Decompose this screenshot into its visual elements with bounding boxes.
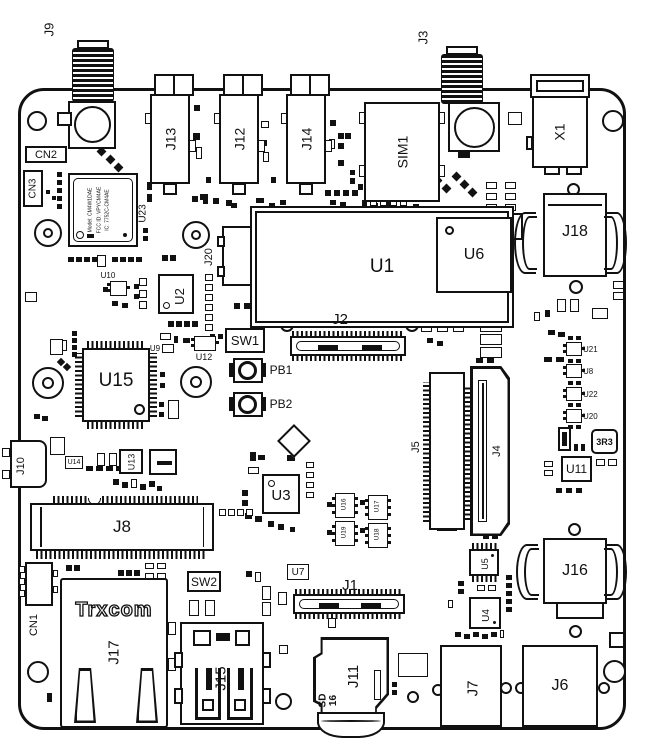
passive-pad — [228, 509, 235, 516]
passive-pad — [219, 509, 226, 516]
passive-pad — [488, 585, 496, 591]
passive-pad — [200, 194, 208, 200]
chip-u11: U11 — [561, 456, 592, 482]
passive-pad — [113, 479, 119, 485]
connector-j7: J7 — [440, 645, 502, 727]
usb-prong-right — [227, 668, 253, 720]
passive-pad — [50, 437, 65, 455]
sma-j9-base — [68, 101, 116, 149]
passive-pad — [205, 304, 213, 311]
chip-u7: U7 — [287, 564, 309, 580]
chip-u2: U2 — [158, 274, 194, 314]
passive-pad — [486, 193, 497, 200]
passive-pad — [218, 334, 223, 339]
mount-hole — [598, 682, 610, 694]
passive-pad — [350, 170, 355, 175]
passive-pad — [458, 581, 464, 586]
ethernet-brand-text: Trxcom — [62, 598, 166, 622]
passive-pad — [258, 140, 265, 152]
chip-u15-label: U15 — [84, 352, 148, 410]
diagonal-pad — [63, 363, 71, 371]
passive-pad — [506, 591, 512, 596]
passive-pad — [246, 509, 253, 516]
passive-pad — [576, 425, 581, 429]
passive-pad — [576, 403, 581, 407]
wireless-module-u23: Model: CM4W1DAE FCC ID: VPYCM4AE IC: 775… — [68, 173, 138, 247]
chip-u12-label: U12 — [190, 352, 218, 362]
passive-pad — [159, 402, 164, 407]
chip-u13: U13 — [119, 449, 143, 474]
connector-cn3: CN3 — [23, 170, 43, 207]
micro-usb-j10: J10 — [10, 440, 47, 488]
connector-cn2: CN2 — [25, 146, 67, 163]
passive-pad — [143, 236, 148, 241]
passive-pad — [76, 257, 82, 262]
passive-pad — [268, 521, 274, 527]
passive-pad — [196, 147, 202, 159]
passive-pad — [352, 190, 358, 196]
antenna-j3-label: J3 — [414, 22, 432, 52]
passive-pad — [57, 180, 62, 185]
chip-u20 — [566, 409, 582, 423]
chip-u6: U6 — [436, 217, 512, 293]
passive-pad — [106, 466, 113, 471]
passive-pad — [262, 602, 271, 616]
passive-pad — [557, 299, 566, 312]
chip-u12 — [194, 336, 216, 351]
micro-usb-j10-label: J10 — [14, 448, 28, 484]
passive-pad — [477, 585, 485, 591]
passive-pad — [205, 284, 213, 291]
passive-pad — [176, 321, 182, 327]
passive-pad — [448, 600, 453, 608]
passive-pad — [66, 565, 72, 571]
diagonal-pad — [441, 183, 451, 193]
ethernet-jack-j17: Trxcom J17 — [60, 578, 168, 728]
passive-pad — [556, 488, 562, 493]
passive-pad — [57, 196, 62, 201]
chip-u19: U19 — [335, 521, 355, 546]
passive-pad — [576, 359, 581, 363]
passive-pad — [193, 133, 200, 140]
passive-pad — [128, 257, 134, 262]
passive-pad — [608, 459, 617, 466]
passive-pad — [325, 140, 332, 152]
passive-pad — [53, 570, 58, 577]
passive-pad — [170, 255, 176, 261]
passive-pad — [392, 690, 397, 695]
mount-hole-ring-inner — [190, 376, 202, 388]
connector-j7-label: J7 — [464, 667, 482, 709]
header-j20-label: J20 — [202, 240, 216, 274]
passive-pad — [46, 190, 50, 194]
switch-sw2: SW2 — [187, 571, 221, 592]
passive-pad — [506, 607, 512, 612]
passive-pad — [258, 455, 265, 460]
passive-pad — [86, 466, 93, 471]
passive-pad — [162, 255, 168, 261]
passive-pad — [398, 653, 428, 677]
header-cn1 — [25, 562, 53, 606]
chip-u3-label: U3 — [264, 478, 298, 512]
header-cn1-label: CN1 — [27, 608, 41, 642]
passive-pad — [194, 105, 200, 111]
chip-u21-label: U21 — [583, 344, 607, 354]
passive-pad — [97, 255, 106, 267]
passive-pad — [84, 257, 90, 262]
passive-pad — [544, 461, 553, 467]
passive-pad — [205, 274, 213, 281]
passive-pad — [327, 502, 332, 507]
passive-pad — [68, 257, 74, 262]
passive-pad — [255, 572, 261, 582]
ethernet-jack-j17-label: J17 — [102, 632, 126, 672]
passive-pad — [246, 571, 252, 577]
microsd-slot-j11-label: J11 — [345, 655, 363, 697]
diagonal-pad — [467, 187, 477, 197]
passive-pad — [500, 630, 504, 638]
passive-pad — [480, 347, 502, 358]
passive-pad — [544, 357, 552, 362]
passive-pad — [455, 632, 461, 637]
inductor-3r3: 3R3 — [591, 429, 618, 454]
passive-pad — [192, 321, 198, 327]
passive-pad — [345, 133, 351, 139]
passive-pad — [334, 190, 340, 196]
passive-pad — [613, 281, 624, 289]
passive-pad — [350, 178, 355, 184]
passive-pad — [250, 452, 256, 461]
passive-pad — [338, 133, 344, 139]
passive-pad — [74, 565, 80, 571]
pcb-assembly-diagram: J9 CN2 CN3 Model: CM4W1DAE FCC ID: VPYCM… — [0, 0, 650, 741]
mount-hole — [275, 693, 292, 710]
chip-u6-label: U6 — [438, 219, 510, 291]
passive-pad — [437, 341, 443, 346]
passive-pad — [226, 200, 232, 206]
mount-hole — [27, 111, 47, 131]
chip-u8-label: U8 — [583, 366, 607, 376]
antenna-j9-label: J9 — [40, 14, 58, 44]
chip-u18: U18 — [368, 523, 388, 548]
sma-j9-barrel — [74, 106, 111, 143]
passive-pad — [122, 303, 128, 308]
passive-pad — [109, 453, 117, 466]
passive-pad — [392, 682, 397, 687]
mount-hole-ring-inner — [43, 228, 53, 238]
passive-pad — [184, 321, 190, 327]
passive-pad — [338, 143, 344, 149]
passive-pad — [558, 332, 565, 337]
passive-pad — [576, 488, 582, 493]
chip-with-dash-mark — [149, 449, 177, 475]
passive-pad — [464, 634, 470, 639]
passive-pad — [52, 196, 56, 200]
diagonal-pad — [451, 171, 461, 181]
mount-hole — [27, 661, 49, 683]
chip-u16: U16 — [335, 493, 355, 518]
passive-pad — [568, 403, 573, 407]
passive-pad — [458, 589, 464, 594]
usb-a-port-j15: J15 — [180, 622, 264, 725]
passive-pad — [534, 312, 540, 321]
passive-pad — [330, 120, 336, 126]
passive-pad — [53, 586, 58, 593]
chip-u21 — [566, 342, 582, 356]
capacitor-component — [558, 427, 571, 451]
passive-pad — [306, 482, 314, 488]
passive-pad — [168, 321, 174, 327]
chip-u22 — [566, 387, 582, 401]
chip-u14: U14 — [65, 456, 83, 469]
power-jack-x1-label: X1 — [546, 108, 574, 156]
passive-pad — [157, 563, 166, 569]
chip-u22-label: U22 — [583, 389, 607, 399]
module-text-line3: IC: 7752C-CM4AE — [104, 177, 112, 243]
passive-pad — [574, 444, 578, 451]
module-pin1-ring — [76, 231, 84, 239]
passive-pad — [548, 330, 555, 335]
passive-pad — [487, 358, 494, 363]
passive-pad — [325, 190, 331, 196]
passive-pad — [255, 516, 262, 522]
passive-pad — [126, 570, 132, 576]
passive-pad — [160, 383, 165, 388]
diagonal-pad — [105, 154, 115, 164]
module-text-line2: FCC ID: VPYCM4AE — [95, 177, 103, 243]
passive-pad — [613, 292, 624, 300]
passive-pad — [505, 182, 516, 189]
diagonal-pad — [459, 179, 469, 189]
passive-pad — [131, 479, 137, 488]
push-button-pb2-label: PB2 — [265, 397, 297, 411]
passive-pad — [160, 333, 171, 340]
passive-pad — [57, 204, 62, 209]
sma-j3-barrel — [454, 107, 495, 148]
passive-pad — [568, 381, 573, 385]
passive-pad — [134, 570, 140, 576]
header-j20 — [222, 226, 252, 286]
passive-pad — [189, 600, 199, 616]
passive-pad — [97, 453, 105, 466]
passive-pad — [556, 357, 564, 362]
passive-pad — [544, 470, 553, 476]
passive-pad — [280, 200, 286, 205]
passive-pad — [206, 177, 211, 183]
passive-pad — [343, 190, 349, 196]
passive-pad — [581, 444, 585, 451]
passive-pad — [278, 592, 287, 605]
passive-pad — [149, 481, 155, 487]
mpcie-connector-j8-label: J8 — [30, 505, 214, 549]
passive-pad — [237, 509, 244, 516]
passive-pad — [576, 381, 581, 385]
passive-pad — [34, 414, 40, 419]
chip-u4: U4 — [469, 597, 501, 629]
sd-card-text-2: 16 — [328, 688, 339, 712]
passive-pad — [72, 345, 77, 350]
passive-pad — [508, 112, 522, 125]
mount-hole — [603, 660, 626, 683]
mount-hole — [602, 110, 624, 132]
usb-port-j18-label: J18 — [548, 212, 602, 252]
u2-pin1-ring — [163, 302, 170, 309]
mount-hole — [569, 625, 582, 638]
passive-pad — [189, 140, 196, 152]
passive-pad — [242, 490, 248, 496]
mount-hole — [569, 280, 583, 294]
usb-port-j16-label: J16 — [548, 552, 602, 590]
usb-prong-left — [195, 668, 221, 720]
passive-pad — [168, 622, 176, 635]
passive-pad — [145, 563, 154, 569]
passive-pad — [72, 338, 77, 343]
sd-card-text-1: SD — [317, 688, 328, 712]
chip-u3: U3 — [262, 474, 300, 514]
passive-pad — [112, 257, 118, 262]
passive-pad — [112, 301, 118, 306]
passive-pad — [596, 459, 605, 466]
audio-jack-j14-label: J14 — [292, 112, 320, 166]
passive-pad — [271, 177, 276, 183]
push-button-pb1-label: PB1 — [265, 363, 297, 377]
small-square-pad-bottom-right — [609, 632, 625, 648]
passive-pad — [139, 290, 147, 298]
passive-pad — [242, 500, 248, 506]
passive-pad — [576, 336, 581, 340]
passive-pad — [174, 336, 178, 343]
passive-pad — [25, 292, 37, 302]
passive-pad — [506, 599, 512, 604]
header-j5-label: J5 — [409, 430, 423, 464]
passive-pad — [103, 287, 108, 292]
passive-pad — [491, 632, 497, 637]
passive-pad — [122, 482, 128, 488]
passive-pad — [57, 188, 62, 193]
passive-pad — [506, 583, 512, 588]
mount-hole-ring-inner — [191, 230, 201, 240]
mount-hole — [568, 523, 581, 536]
passive-pad — [486, 182, 497, 189]
mount-hole-ring-inner — [42, 377, 54, 389]
passive-pad — [162, 344, 174, 353]
passive-pad — [140, 484, 146, 490]
passive-pad — [592, 308, 608, 319]
passive-pad — [482, 634, 488, 639]
passive-pad — [57, 172, 62, 177]
passive-pad — [168, 400, 179, 419]
diagonal-pad — [113, 162, 123, 172]
passive-pad — [183, 338, 190, 343]
u15-pin1-ring — [134, 404, 145, 415]
passive-pad — [568, 336, 573, 340]
chip-u10-label: U10 — [96, 270, 120, 280]
passive-pad — [262, 586, 271, 600]
connector-j6: J6 — [522, 645, 598, 727]
passive-pad — [338, 160, 344, 166]
passive-pad — [328, 618, 336, 628]
passive-pad — [506, 575, 512, 580]
ethernet-latch-right — [136, 668, 158, 723]
passive-pad — [473, 632, 479, 637]
passive-pad — [545, 310, 550, 317]
passive-pad — [566, 488, 572, 493]
sma-j9-thread — [72, 48, 114, 102]
passive-pad — [290, 527, 295, 532]
passive-pad — [306, 492, 314, 498]
switch-sw1: SW1 — [225, 328, 265, 353]
passive-pad — [358, 184, 363, 190]
connector-j4-label: J4 — [490, 434, 504, 468]
sim1-label: SIM1 — [388, 122, 416, 182]
audio-jack-j12-label: J12 — [225, 112, 253, 166]
chip-u17: U17 — [368, 495, 388, 520]
ethernet-latch-left — [74, 668, 96, 723]
passive-pad — [205, 314, 213, 321]
top-left-square-pad — [57, 112, 72, 126]
passive-pad — [256, 198, 264, 203]
passive-pad — [476, 358, 483, 363]
passive-pad — [261, 121, 269, 128]
passive-pad — [192, 196, 198, 202]
passive-pad — [205, 600, 215, 616]
passive-pad — [159, 412, 164, 417]
passive-pad — [480, 334, 502, 345]
chip-u20-label: U20 — [583, 411, 607, 421]
chip-u8 — [566, 364, 582, 378]
passive-pad — [568, 359, 573, 363]
passive-pad — [118, 570, 124, 576]
passive-pad — [120, 257, 126, 262]
sma-j3-thread — [441, 54, 483, 104]
passive-pad — [47, 693, 52, 702]
audio-jack-j13-label: J13 — [156, 112, 184, 166]
passive-pad — [306, 472, 314, 478]
passive-pad — [2, 470, 10, 479]
sma-j3-base — [448, 102, 500, 152]
mount-hole — [407, 691, 419, 703]
passive-pad — [248, 467, 259, 474]
passive-pad — [505, 193, 516, 200]
passive-pad — [427, 338, 433, 343]
passive-pad — [42, 416, 48, 421]
passive-pad — [234, 303, 240, 309]
passive-pad — [205, 294, 213, 301]
passive-pad — [160, 372, 165, 377]
passive-pad — [263, 152, 269, 162]
passive-pad — [279, 645, 288, 654]
passive-pad — [136, 257, 142, 262]
passive-pad — [96, 466, 103, 471]
passive-pad — [205, 324, 213, 331]
passive-pad — [2, 448, 10, 457]
btb-connector-j2-label: J2 — [322, 310, 358, 328]
passive-pad — [570, 299, 579, 312]
passive-pad — [139, 278, 147, 286]
module-u23-label: U23 — [137, 196, 149, 230]
passive-pad — [327, 530, 332, 535]
passive-pad — [306, 462, 314, 468]
header-j5 — [429, 372, 465, 530]
passive-pad — [278, 524, 284, 530]
passive-pad — [50, 339, 63, 355]
passive-pad — [72, 331, 77, 336]
passive-pad — [330, 200, 336, 205]
passive-pad — [458, 152, 470, 158]
chip-u10 — [110, 281, 127, 296]
passive-pad — [157, 486, 162, 491]
passive-pad — [139, 301, 147, 309]
